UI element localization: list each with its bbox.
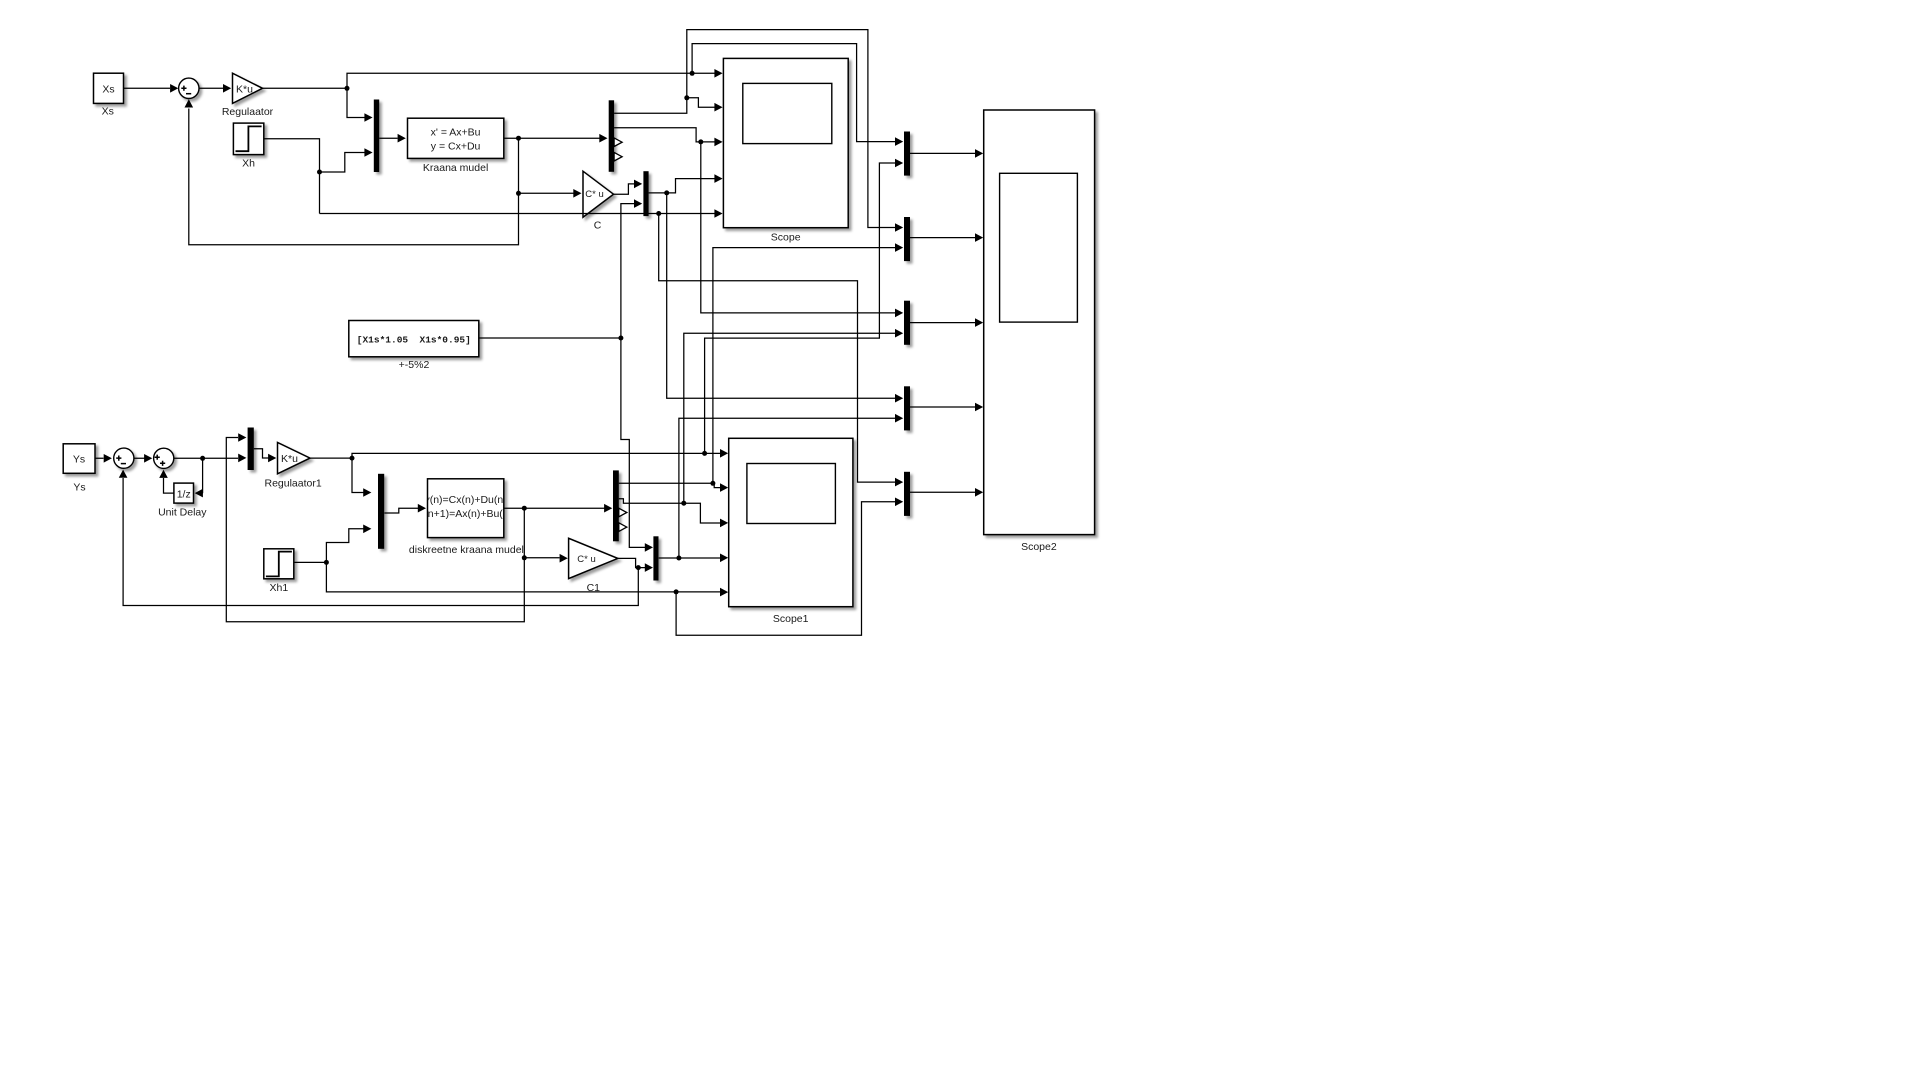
svg-text:Regulaator1: Regulaator1	[264, 478, 321, 490]
svg-text:1/z: 1/z	[177, 488, 191, 500]
svg-text:y(n)=Cx(n)+Du(n): y(n)=Cx(n)+Du(n)	[424, 494, 506, 506]
svg-text:Scope2: Scope2	[1021, 541, 1057, 553]
svg-text:Xh1: Xh1	[270, 582, 289, 594]
svg-text:Unit Delay: Unit Delay	[158, 507, 207, 519]
svg-text:C* u: C* u	[577, 554, 595, 565]
svg-text:Xh: Xh	[242, 157, 255, 169]
svg-text:Kraana mudel: Kraana mudel	[423, 162, 488, 174]
svg-text:Xs: Xs	[102, 106, 114, 118]
svg-text:C1: C1	[587, 582, 601, 594]
svg-text:K*u: K*u	[281, 453, 298, 465]
svg-text:Scope1: Scope1	[773, 613, 809, 625]
svg-text:K*u: K*u	[236, 83, 253, 95]
svg-text:Scope: Scope	[771, 231, 801, 243]
svg-text:Ys: Ys	[73, 482, 85, 494]
svg-text:Xs: Xs	[102, 83, 114, 95]
svg-text:C* u: C* u	[585, 189, 603, 200]
svg-text:+-5%2: +-5%2	[399, 359, 430, 371]
svg-text:x(n+1)=Ax(n)+Bu(n): x(n+1)=Ax(n)+Bu(n)	[419, 508, 512, 520]
svg-text:x' = Ax+Bu: x' = Ax+Bu	[431, 126, 481, 138]
svg-text:Regulaator: Regulaator	[222, 106, 274, 118]
svg-text:y = Cx+Du: y = Cx+Du	[431, 140, 481, 152]
svg-text:[X1s*1.05 X1s*0.95]: [X1s*1.05 X1s*0.95]	[357, 334, 471, 345]
svg-text:Ys: Ys	[73, 453, 85, 465]
svg-text:diskreetne kraana mudel: diskreetne kraana mudel	[409, 544, 524, 556]
svg-text:C: C	[594, 220, 602, 232]
